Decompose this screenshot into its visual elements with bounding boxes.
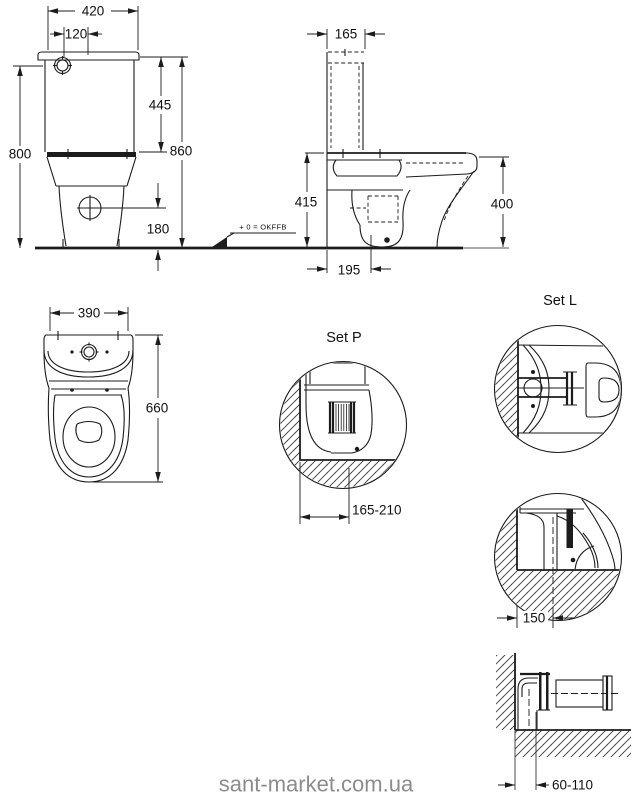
- seat-opening: [63, 407, 115, 467]
- floor-datum: + 0 = OKFFB: [212, 223, 296, 248]
- set-l-label: Set L: [543, 293, 577, 309]
- outlet-pipe-piece: [551, 676, 618, 710]
- dim-outlet-distance: 195: [338, 263, 361, 278]
- set-l-wall-offset-detail: 60-110: [496, 653, 631, 793]
- side-view: 165: [212, 27, 513, 278]
- set-p-detail: Set P: [279, 330, 407, 524]
- set-l-details: Set L: [494, 293, 631, 793]
- dim-front-width: 420: [82, 4, 105, 19]
- dim-button-offset: 120: [65, 27, 88, 42]
- top-view: 390: [44, 306, 168, 483]
- technical-drawing-page: 420 120 445 860 800 180: [0, 0, 633, 800]
- dim-top-width: 390: [78, 306, 101, 321]
- front-view-toilet-outline: [38, 52, 139, 249]
- set-p-label: Set P: [326, 330, 361, 346]
- dim-height-with-seat: 415: [295, 195, 318, 210]
- corrugated-connector: [328, 402, 356, 433]
- top-view-toilet-outline: [44, 331, 133, 482]
- outlet-trap-hidden: [350, 196, 398, 222]
- dim-body-height: 800: [9, 147, 32, 162]
- dim-tank-height: 445: [149, 98, 172, 113]
- watermark: sant-market.com.ua: [219, 772, 414, 797]
- outlet-flange: [567, 509, 574, 548]
- datum-label: + 0 = OKFFB: [239, 223, 286, 232]
- fixing-dot: [384, 237, 390, 243]
- flush-button-top: [80, 343, 99, 362]
- dim-tank-depth: 165: [335, 27, 358, 42]
- dim-top-depth: 660: [146, 401, 169, 416]
- dim-p-outlet-range: 165-210: [352, 503, 402, 518]
- toilet-dimension-drawing: 420 120 445 860 800 180: [0, 0, 633, 800]
- dim-l-wall-offset: 60-110: [552, 778, 593, 793]
- side-view-toilet-outline: [327, 49, 477, 247]
- dim-rim-height: 400: [491, 197, 514, 212]
- dim-total-height: 860: [170, 144, 193, 159]
- set-l-side-view-detail: 150: [494, 494, 622, 629]
- flush-button-front: [53, 56, 72, 75]
- water-spot: [76, 422, 102, 443]
- dim-drain-height: 180: [147, 222, 170, 237]
- dim-l-floor-outlet: 150: [523, 611, 546, 626]
- set-l-top-view-detail: [494, 326, 622, 453]
- drain-hole: [77, 195, 103, 221]
- seat-band: [47, 152, 136, 157]
- datum-triangle-icon: [212, 237, 227, 247]
